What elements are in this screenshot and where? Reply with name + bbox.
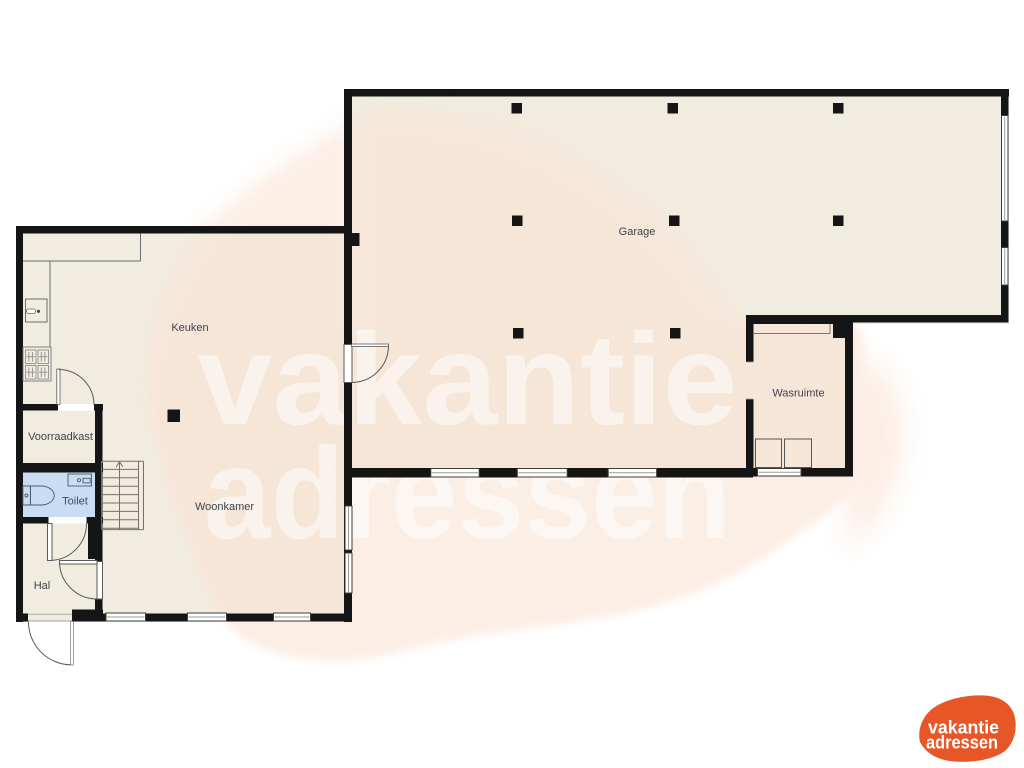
svg-text:adressen: adressen (926, 732, 998, 753)
svg-text:Voorraadkast: Voorraadkast (28, 431, 93, 443)
svg-text:Garage: Garage (619, 226, 656, 238)
svg-text:Keuken: Keuken (171, 322, 208, 334)
svg-text:Hal: Hal (34, 580, 51, 592)
svg-text:Toilet: Toilet (62, 496, 88, 508)
svg-text:Woonkamer: Woonkamer (195, 501, 254, 513)
svg-text:adressen: adressen (204, 420, 731, 566)
svg-text:Wasruimte: Wasruimte (772, 388, 824, 400)
